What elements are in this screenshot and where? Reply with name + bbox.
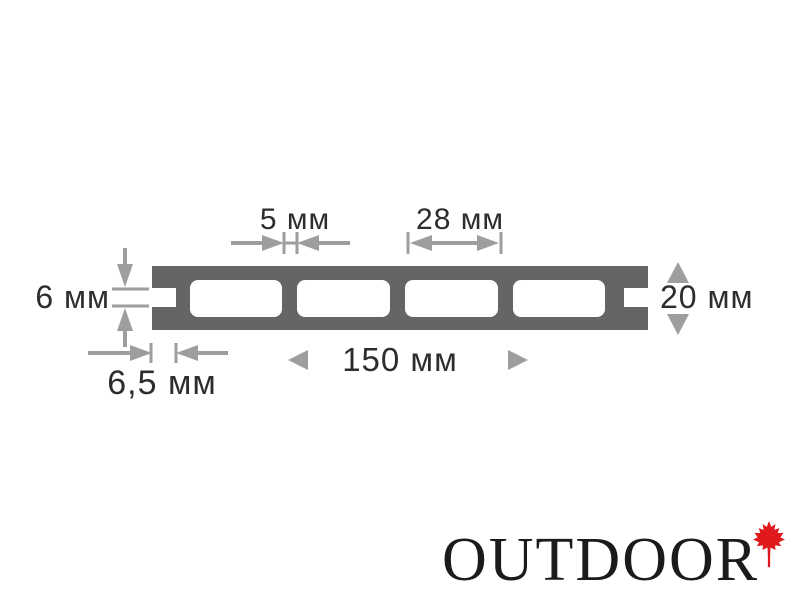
- label-groove-height: 6 мм: [10, 281, 110, 315]
- arrow-up-icon: [117, 308, 133, 331]
- brand-logo-text: OUTDOOR: [442, 529, 759, 591]
- label-web-thickness: 5 мм: [245, 204, 345, 236]
- product-spec-image: 5 мм 28 мм 6 мм 20 мм 150 мм 6,5 мм OUTD…: [0, 0, 800, 600]
- label-chamber-width: 28 мм: [398, 204, 522, 236]
- arrow-right-icon: [477, 235, 499, 251]
- arrow-left-icon: [410, 235, 432, 251]
- arrow-down-icon: [117, 264, 133, 287]
- arrow-left-icon: [297, 235, 319, 251]
- arrow-left-icon: [176, 345, 198, 361]
- label-board-width: 150 мм: [318, 343, 482, 378]
- label-board-thickness: 20 мм: [660, 281, 800, 315]
- arrow-right-icon: [508, 350, 528, 370]
- board-cross-section: [152, 266, 648, 330]
- arrow-down-icon: [667, 314, 689, 335]
- arrow-left-icon: [288, 350, 308, 370]
- board-chamber: [513, 280, 605, 317]
- arrow-right-icon: [130, 345, 152, 361]
- dimension-groove-depth-6-5mm: [88, 343, 228, 363]
- board-chamber: [297, 280, 390, 317]
- board-chamber: [190, 280, 282, 317]
- board-chamber: [405, 280, 498, 317]
- arrow-right-icon: [262, 235, 284, 251]
- dimension-groove-height-6mm: [112, 248, 149, 347]
- maple-leaf-icon: [750, 521, 788, 568]
- label-groove-depth: 6,5 мм: [82, 366, 242, 402]
